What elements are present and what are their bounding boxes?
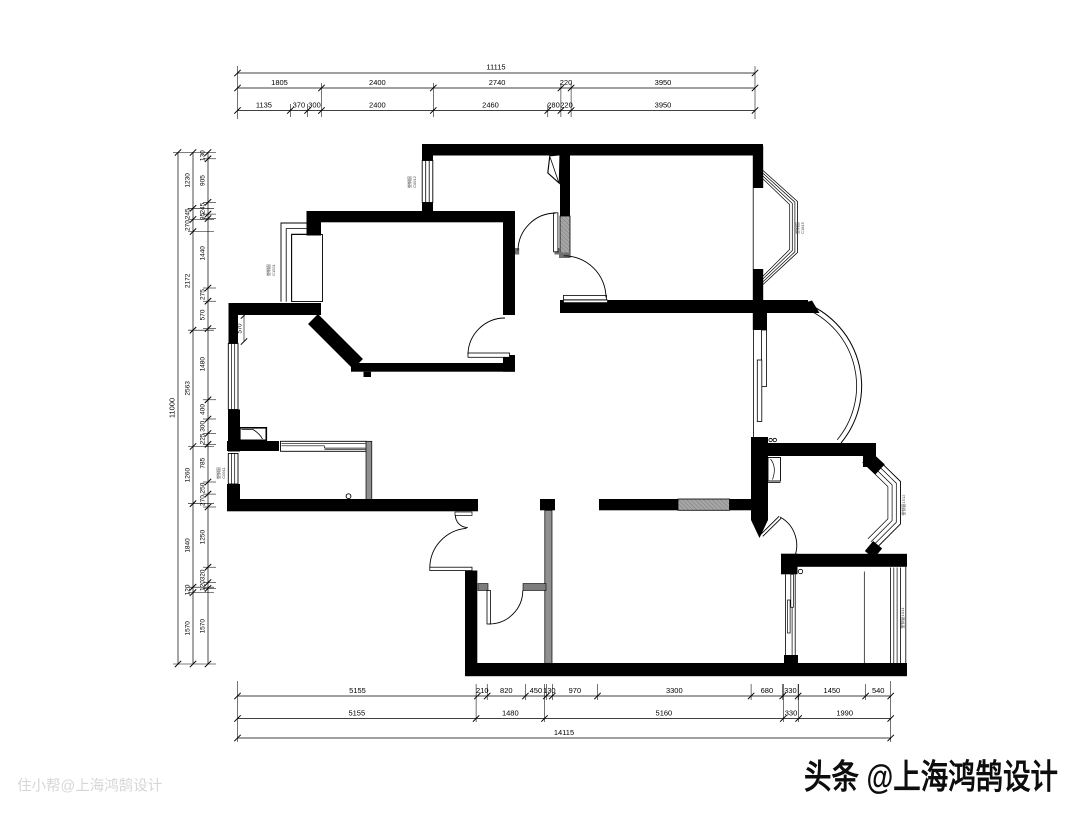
svg-text:1480: 1480 [502,708,519,717]
svg-text:270: 270 [200,495,207,506]
svg-text:3950: 3950 [655,78,672,87]
svg-text:275: 275 [200,289,207,300]
svg-text:11000: 11000 [168,398,177,418]
svg-text:1990: 1990 [836,708,853,717]
svg-text:1570: 1570 [200,619,207,634]
svg-text:塑钢窗1014: 塑钢窗1014 [899,607,905,629]
svg-text:570: 570 [238,323,244,334]
svg-text:1450: 1450 [824,686,841,695]
svg-text:2740: 2740 [489,78,506,87]
svg-text:塑钢窗1512: 塑钢窗1512 [900,494,906,516]
svg-text:225: 225 [200,433,207,444]
svg-text:300: 300 [308,100,321,109]
svg-text:120: 120 [185,584,192,595]
svg-text:2400: 2400 [369,78,386,87]
svg-text:5155: 5155 [349,686,366,695]
svg-text:3300: 3300 [666,686,683,695]
svg-text:住小帮@上海鸿鹄设计: 住小帮@上海鸿鹄设计 [17,778,162,795]
svg-text:130: 130 [543,686,556,695]
svg-text:2400: 2400 [369,100,386,109]
svg-text:330: 330 [784,686,797,695]
svg-text:970: 970 [569,686,582,695]
svg-text:C0912: C0912 [412,175,417,188]
svg-text:270: 270 [185,220,192,231]
svg-text:785: 785 [200,457,207,468]
svg-text:400: 400 [200,404,207,415]
svg-text:1840: 1840 [185,538,192,553]
svg-text:11115: 11115 [486,63,505,72]
svg-text:370: 370 [293,100,306,109]
svg-text:540: 540 [872,686,885,695]
svg-text:245: 245 [200,202,207,213]
svg-text:2172: 2172 [185,273,192,288]
svg-text:1260: 1260 [185,467,192,482]
svg-text:1135: 1135 [256,100,272,109]
svg-text:1480: 1480 [200,357,207,372]
svg-text:130: 130 [200,150,207,161]
svg-text:14115: 14115 [554,728,574,737]
svg-text:1230: 1230 [185,173,192,188]
svg-text:头条 @上海鸿鹄设计: 头条 @上海鸿鹄设计 [804,759,1058,797]
svg-text:570: 570 [200,309,207,320]
svg-text:680: 680 [761,686,774,695]
svg-text:220: 220 [560,78,573,87]
svg-text:C1815: C1815 [800,221,805,234]
svg-text:1805: 1805 [271,78,288,87]
svg-text:3950: 3950 [655,100,672,109]
svg-text:1570: 1570 [185,621,192,636]
svg-text:210: 210 [476,686,489,695]
svg-text:245: 245 [185,208,192,219]
svg-text:330: 330 [785,708,798,717]
svg-text:1440: 1440 [200,246,207,261]
svg-text:300: 300 [200,420,207,431]
svg-text:450: 450 [530,686,543,695]
svg-text:C0911: C0911 [221,466,226,478]
svg-text:5155: 5155 [348,708,365,717]
svg-text:280: 280 [547,100,560,109]
svg-text:2563: 2563 [185,381,192,396]
svg-text:2460: 2460 [482,100,499,109]
svg-text:1250: 1250 [200,529,207,544]
svg-text:905: 905 [200,175,207,186]
svg-text:C1521: C1521 [271,263,276,276]
svg-text:820: 820 [500,686,513,695]
svg-text:120: 120 [200,580,207,591]
svg-text:250: 250 [200,482,207,493]
svg-text:320: 320 [200,569,207,580]
svg-text:5160: 5160 [656,708,673,717]
